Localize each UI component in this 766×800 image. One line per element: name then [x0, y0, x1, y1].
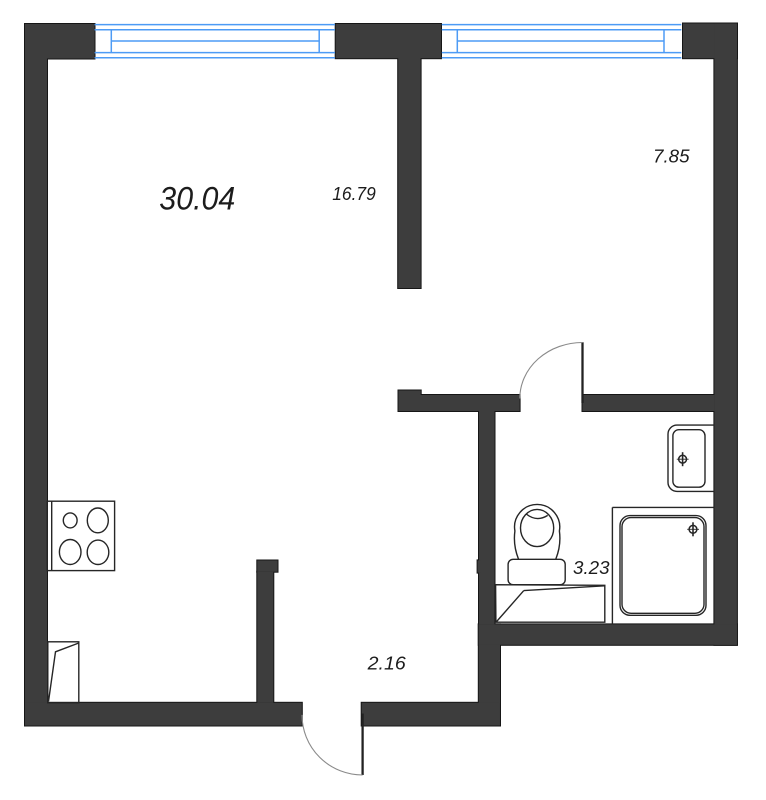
svg-text:16.79: 16.79 — [332, 184, 376, 204]
svg-text:7.85: 7.85 — [653, 146, 691, 166]
svg-text:30.04: 30.04 — [159, 180, 235, 216]
svg-text:2.16: 2.16 — [367, 653, 407, 673]
svg-text:3.23: 3.23 — [573, 558, 610, 578]
